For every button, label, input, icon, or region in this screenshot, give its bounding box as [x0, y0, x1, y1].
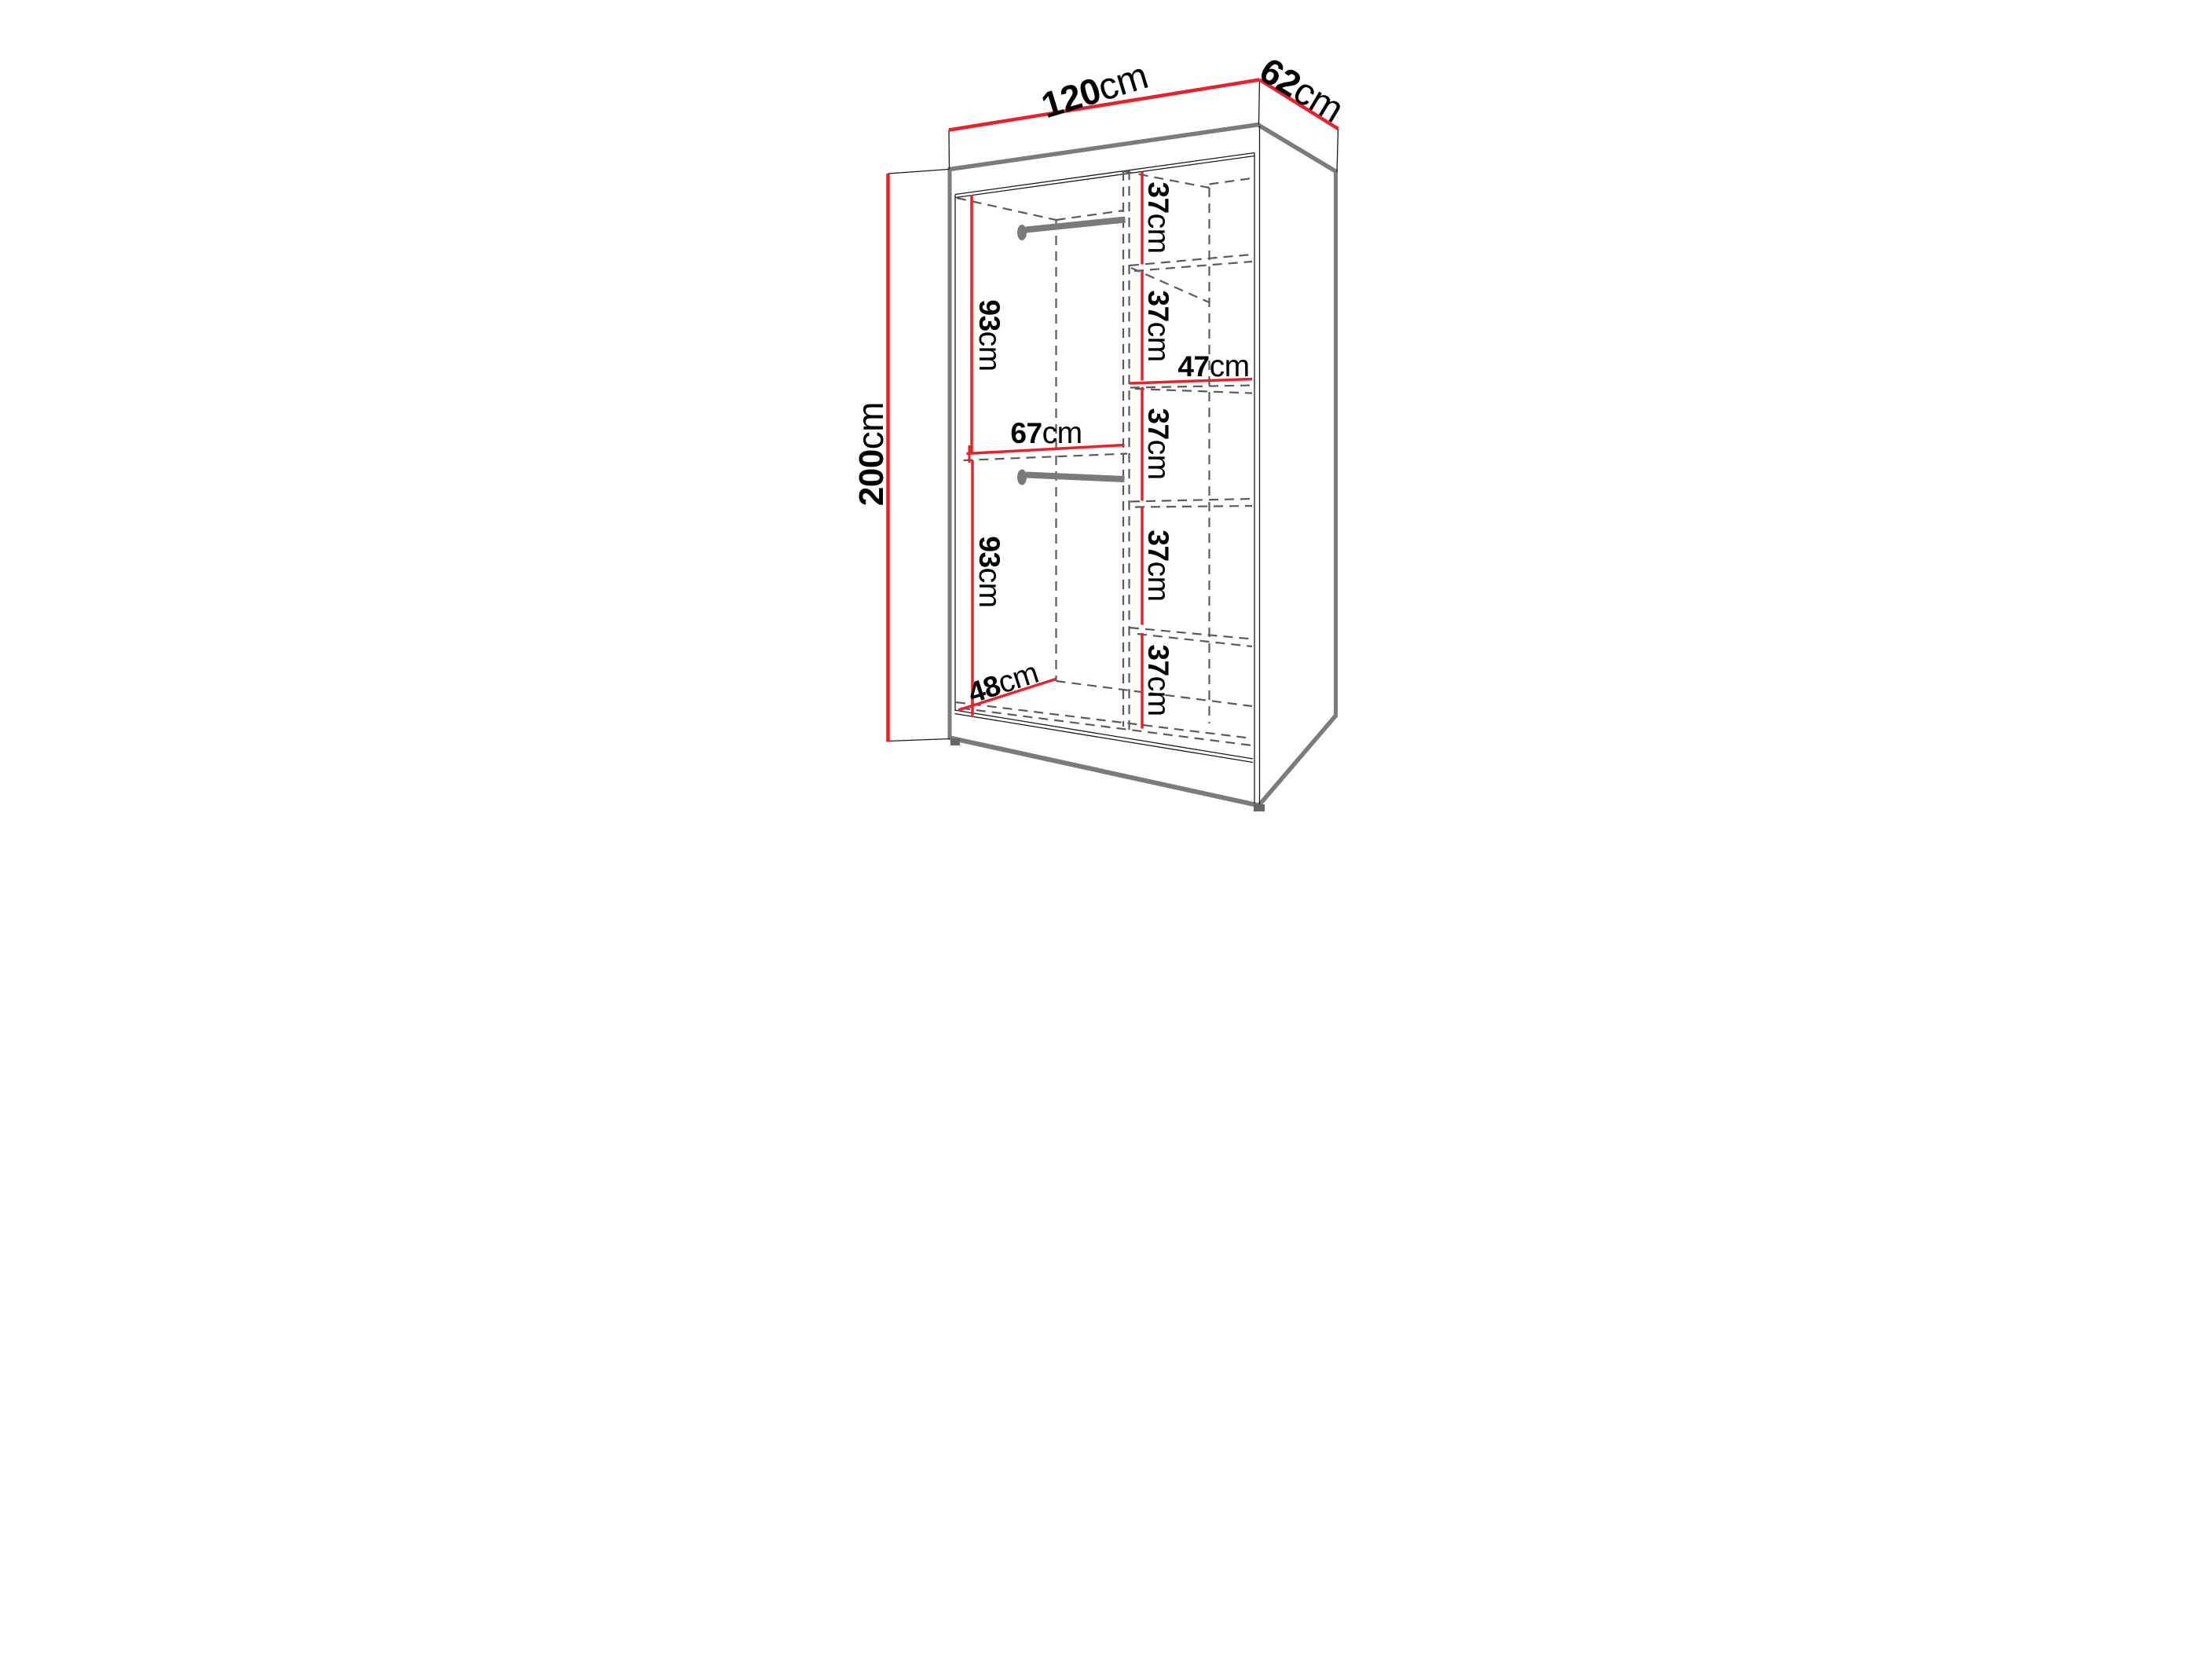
mid-shelf-hidden-edge — [964, 454, 1128, 461]
shelf3-value: 37 — [1142, 408, 1174, 439]
width-label: 120cm — [1037, 55, 1153, 126]
left-foot — [950, 738, 960, 745]
right-foot — [1254, 804, 1265, 811]
shelf1-value: 37 — [1142, 181, 1174, 213]
shelf2-label: 37cm — [1141, 290, 1175, 361]
shelf2-front-edge — [1130, 386, 1252, 388]
shelf1-unit: cm — [1141, 214, 1175, 254]
left-width-value: 67 — [1010, 417, 1042, 449]
shelf4-front-edge — [1130, 628, 1252, 639]
shelf5-label: 37cm — [1141, 644, 1175, 716]
left-depth-label: 48cm — [964, 656, 1042, 710]
height-value: 200 — [852, 449, 891, 506]
shelf5-value: 37 — [1142, 644, 1174, 676]
shelf4-label: 37cm — [1141, 529, 1175, 601]
shelf4-value: 37 — [1142, 529, 1174, 561]
shelf3-label: 37cm — [1141, 408, 1175, 479]
diagram-canvas: 120cm 62cm 200cm 93cm 93cm 67cm 48cm 47c… — [553, 0, 1659, 829]
hidden-edges — [956, 170, 1254, 745]
width-value: 120 — [1037, 69, 1105, 126]
height-unit: cm — [850, 402, 891, 449]
width-unit: cm — [1093, 55, 1153, 109]
shelf2-unit: cm — [1141, 322, 1175, 362]
ext-line-depth — [1337, 129, 1339, 172]
shelf1-label: 37cm — [1141, 181, 1175, 253]
hanging-upper-unit: cm — [972, 331, 1006, 372]
shelf2-back-edge — [1135, 389, 1252, 394]
bottom-front-edge — [949, 738, 1259, 806]
ext-line-height-top — [888, 170, 950, 174]
shelf5-unit: cm — [1141, 676, 1175, 716]
floor-hidden-edge-2 — [961, 709, 1252, 746]
wardrobe-dimension-diagram: 120cm 62cm 200cm 93cm 93cm 67cm 48cm 47c… — [553, 0, 1659, 829]
shelf3-unit: cm — [1141, 440, 1175, 480]
left-width-label: 67cm — [1010, 416, 1082, 450]
ceiling-back-edge-right — [1210, 178, 1255, 185]
shelf-width-label: 47cm — [1177, 350, 1249, 383]
top-right-edge — [1258, 125, 1337, 173]
lower-rail-bar — [1026, 475, 1125, 480]
hanging-upper-label: 93cm — [972, 299, 1006, 371]
depth-label: 62cm — [1253, 49, 1350, 131]
ext-line-height-bottom — [888, 739, 950, 742]
lower-rail-end-cap — [1017, 470, 1027, 485]
shelf-width-value: 47 — [1177, 350, 1209, 383]
shelf-width-unit: cm — [1210, 350, 1250, 383]
height-label: 200cm — [850, 402, 891, 506]
hanging-lower-unit: cm — [972, 568, 1006, 608]
shelf3-front-edge — [1130, 499, 1252, 502]
top-front-edge — [950, 125, 1259, 170]
hanging-upper-value: 93 — [973, 299, 1005, 331]
hanging-lower-label: 93cm — [972, 536, 1006, 607]
floor-hidden-edge-1 — [956, 702, 1252, 738]
bottom-right-edge — [1258, 716, 1336, 806]
ext-line-width-left — [949, 130, 950, 170]
shelf3-back-edge — [1135, 506, 1252, 507]
left-width-unit: cm — [1042, 416, 1082, 450]
shelf2-value: 37 — [1142, 290, 1174, 321]
structural-lines — [888, 80, 1339, 805]
upper-rail-bar — [1026, 220, 1126, 230]
floor-front-edge — [955, 710, 1254, 759]
upper-rail-end-cap — [1017, 225, 1027, 240]
shelf4-unit: cm — [1141, 562, 1175, 602]
hanging-lower-value: 93 — [973, 536, 1005, 567]
